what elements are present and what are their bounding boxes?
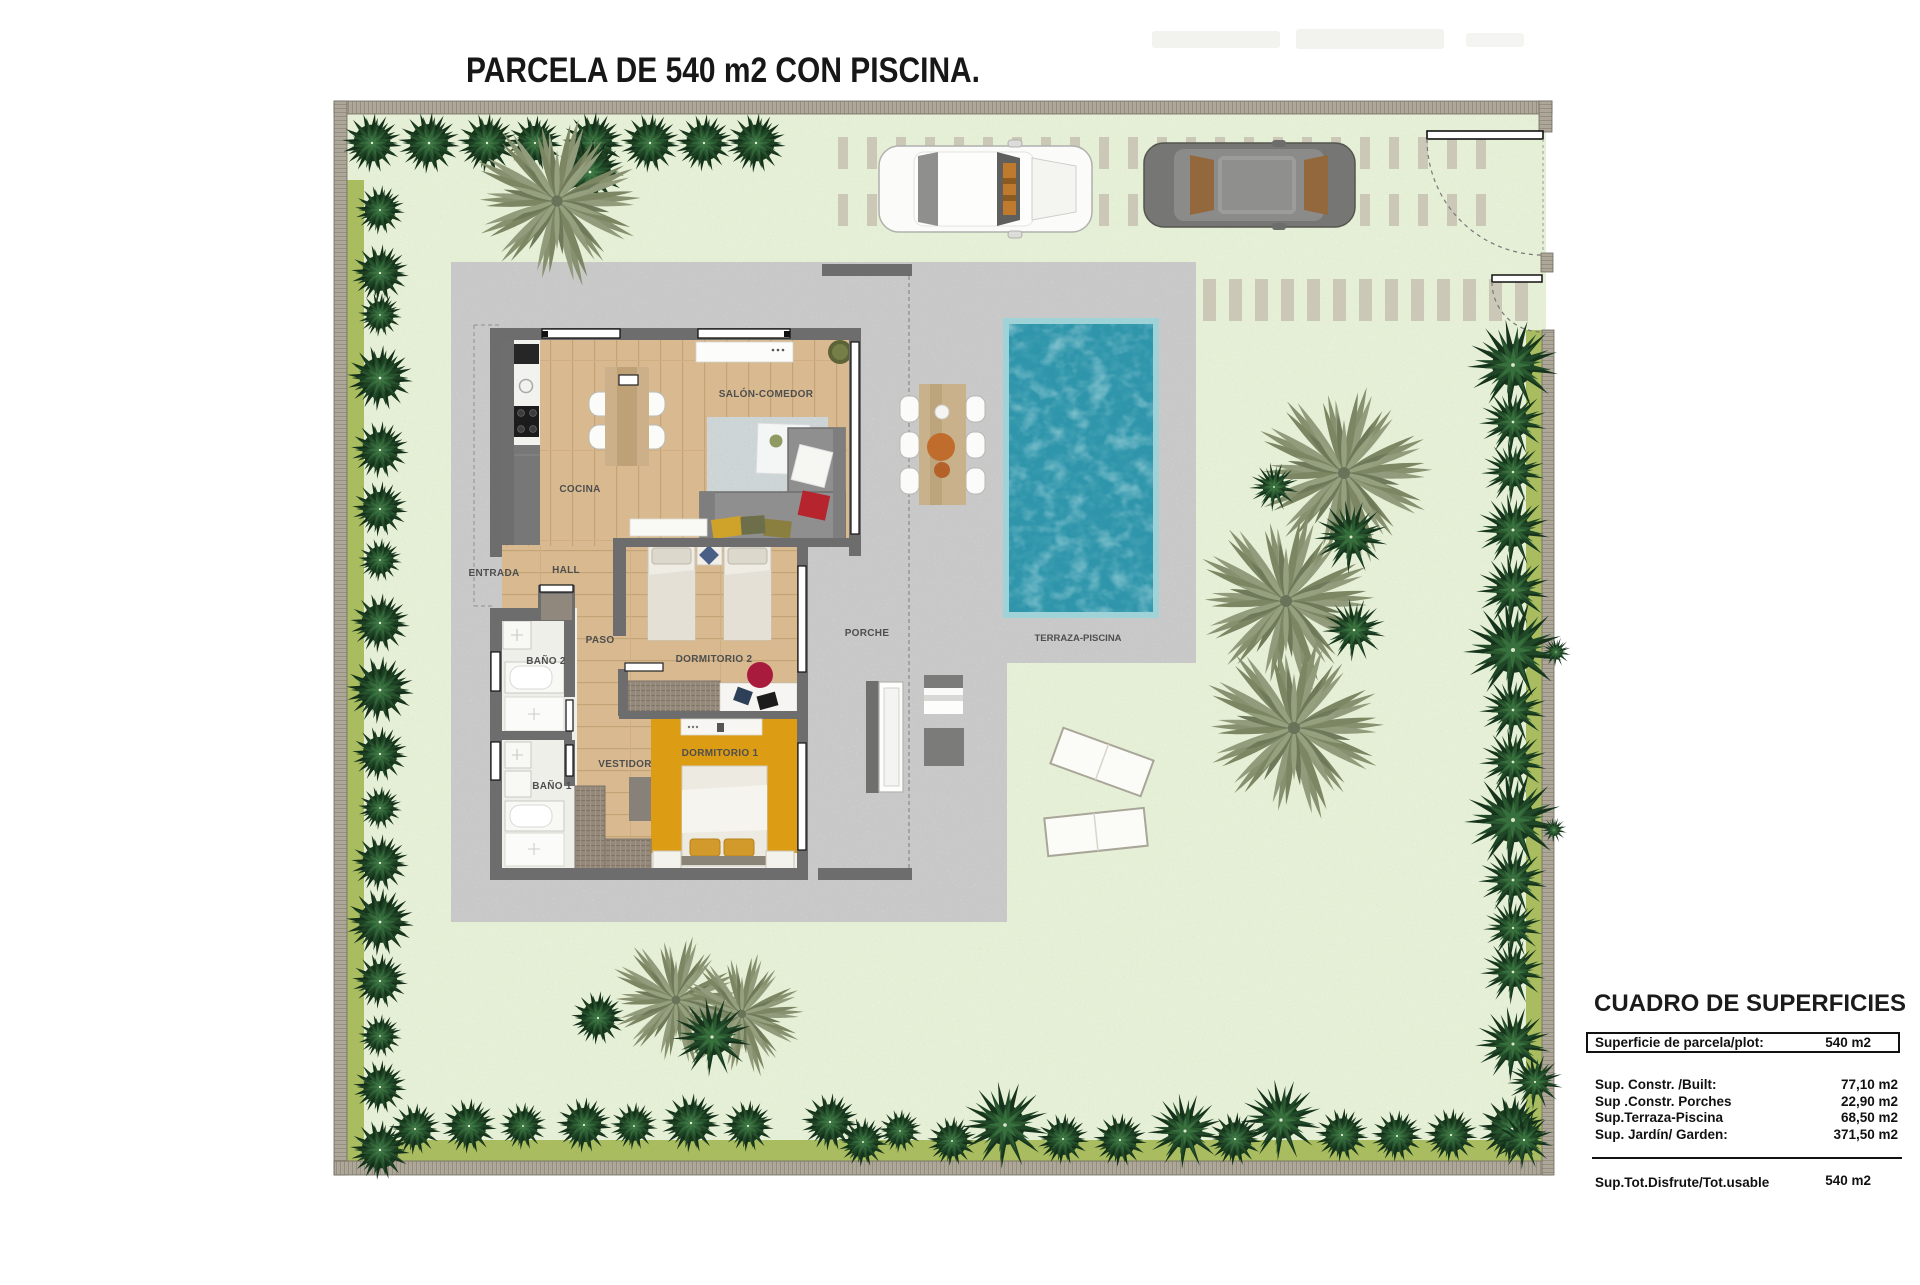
- svg-text:Sup. Constr. /Built:: Sup. Constr. /Built:: [1595, 1077, 1717, 1092]
- svg-text:Sup. Jardín/ Garden:: Sup. Jardín/ Garden:: [1595, 1127, 1728, 1142]
- svg-text:TERRAZA-PISCINA: TERRAZA-PISCINA: [1034, 633, 1121, 644]
- svg-text:DORMITORIO 1: DORMITORIO 1: [682, 748, 759, 759]
- svg-text:Superficie de parcela/plot:: Superficie de parcela/plot:: [1595, 1035, 1764, 1050]
- svg-text:540 m2: 540 m2: [1825, 1035, 1871, 1050]
- svg-text:540 m2: 540 m2: [1825, 1173, 1871, 1188]
- svg-text:CUADRO DE SUPERFICIES: CUADRO DE SUPERFICIES: [1594, 990, 1906, 1017]
- svg-text:ENTRADA: ENTRADA: [469, 568, 520, 579]
- svg-text:371,50 m2: 371,50 m2: [1833, 1127, 1898, 1142]
- svg-text:Sup .Constr. Porches: Sup .Constr. Porches: [1595, 1094, 1732, 1109]
- svg-text:Sup.Terraza-Piscina: Sup.Terraza-Piscina: [1595, 1110, 1724, 1125]
- svg-text:BAÑO 1: BAÑO 1: [532, 779, 572, 792]
- svg-text:SALÓN-COMEDOR: SALÓN-COMEDOR: [719, 387, 814, 400]
- svg-text:BAÑO 2: BAÑO 2: [526, 654, 566, 667]
- svg-text:Sup.Tot.Disfrute/Tot.usable: Sup.Tot.Disfrute/Tot.usable: [1595, 1175, 1770, 1190]
- svg-text:COCINA: COCINA: [559, 484, 600, 495]
- svg-text:PARCELA DE 540 m2 CON PISCINA.: PARCELA DE 540 m2 CON PISCINA.: [466, 51, 980, 90]
- svg-text:68,50 m2: 68,50 m2: [1841, 1110, 1898, 1125]
- svg-text:HALL: HALL: [552, 565, 580, 576]
- svg-text:DORMITORIO 2: DORMITORIO 2: [676, 654, 753, 665]
- svg-text:22,90 m2: 22,90 m2: [1841, 1094, 1898, 1109]
- svg-text:PORCHE: PORCHE: [845, 628, 890, 639]
- svg-text:VESTIDOR: VESTIDOR: [598, 759, 652, 770]
- svg-text:PASO: PASO: [586, 635, 615, 646]
- svg-text:77,10 m2: 77,10 m2: [1841, 1077, 1898, 1092]
